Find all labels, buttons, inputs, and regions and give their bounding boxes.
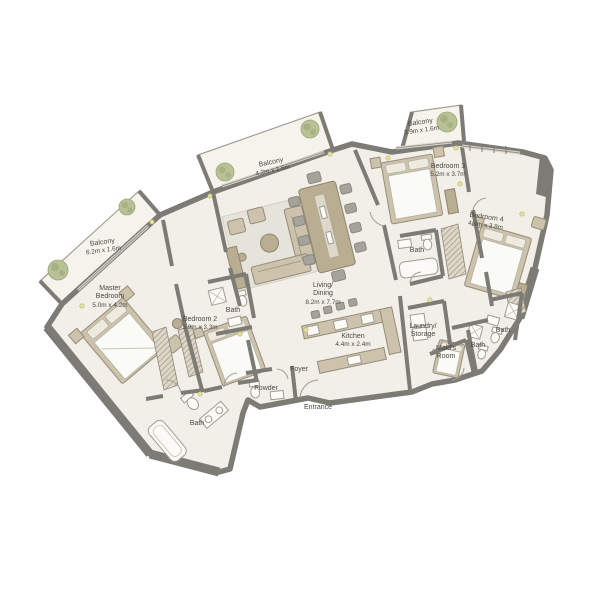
room-name: Entrance (304, 404, 332, 412)
label-foyer: Foyer (290, 366, 308, 374)
room-name: Kitchen (335, 333, 370, 341)
label-entrance: Entrance (304, 404, 332, 412)
label-bedroom-2: Bedroom 2 3.9m x 3.3m (182, 316, 217, 332)
floor-plan-canvas: Balcony 6.2m x 1.6m Master Bedroom 5.0m … (0, 0, 600, 600)
stool-icon (348, 298, 357, 307)
room-dims: 8.2m x 7.7m (305, 298, 340, 306)
label-bath-bedroom-2: Bath (226, 307, 240, 315)
room-name: Bedroom 3 (430, 163, 465, 171)
room-name: Bath (496, 327, 510, 335)
room-name: Laundry/ (409, 323, 436, 331)
room-name: Bath (471, 342, 485, 350)
room-dims: 3.9m x 3.3m (182, 324, 217, 332)
label-bath-bedroom-3: Bath (410, 247, 424, 255)
stool-icon (311, 310, 320, 319)
nightstand-icon (370, 157, 382, 169)
room-dims: 4.4m x 2.4m (335, 341, 370, 349)
room-name: Maid's (436, 345, 456, 353)
room-name: Master (92, 285, 127, 293)
room-name: Room (436, 353, 456, 361)
label-laundry-storage: Laundry/ Storage (409, 323, 436, 340)
label-maids-room: Maid's Room (436, 345, 456, 362)
room-name: Storage (409, 331, 436, 339)
room-dims: 5.0m x 4.2m (92, 301, 127, 309)
nightstand-icon (433, 146, 445, 158)
stool-icon (323, 306, 332, 315)
plant-icon (119, 199, 135, 215)
room-name: Living/ (305, 282, 340, 290)
room-name: Dining (305, 290, 340, 298)
label-master-bedroom: Master Bedroom 5.0m x 4.2m (92, 285, 127, 309)
plant-icon (301, 120, 319, 138)
plant-icon (437, 112, 457, 132)
shower-icon (208, 287, 226, 305)
label-bath-master: Bath (190, 420, 204, 428)
plant-icon (216, 163, 234, 181)
room-name: Bedroom (92, 293, 127, 301)
room-name: Foyer (290, 366, 308, 374)
room-dims: 5.2m x 3.7m (430, 171, 465, 179)
room-name: Bedroom 2 (182, 316, 217, 324)
label-living-dining: Living/ Dining 8.2m x 7.7m (305, 282, 340, 306)
label-kitchen: Kitchen 4.4m x 2.4m (335, 333, 370, 349)
label-bath-maid: Bath (471, 342, 485, 350)
room-name: Powder (254, 385, 278, 393)
room-name: Bath (410, 247, 424, 255)
label-bedroom-3: Bedroom 3 5.2m x 3.7m (430, 163, 465, 179)
room-name: Bath (226, 307, 240, 315)
plant-icon (48, 260, 68, 280)
floor-plan-drawing (0, 0, 600, 600)
room-name: Bath (190, 420, 204, 428)
label-bath-bedroom-4: Bath (496, 327, 510, 335)
label-powder: Powder (254, 385, 278, 393)
